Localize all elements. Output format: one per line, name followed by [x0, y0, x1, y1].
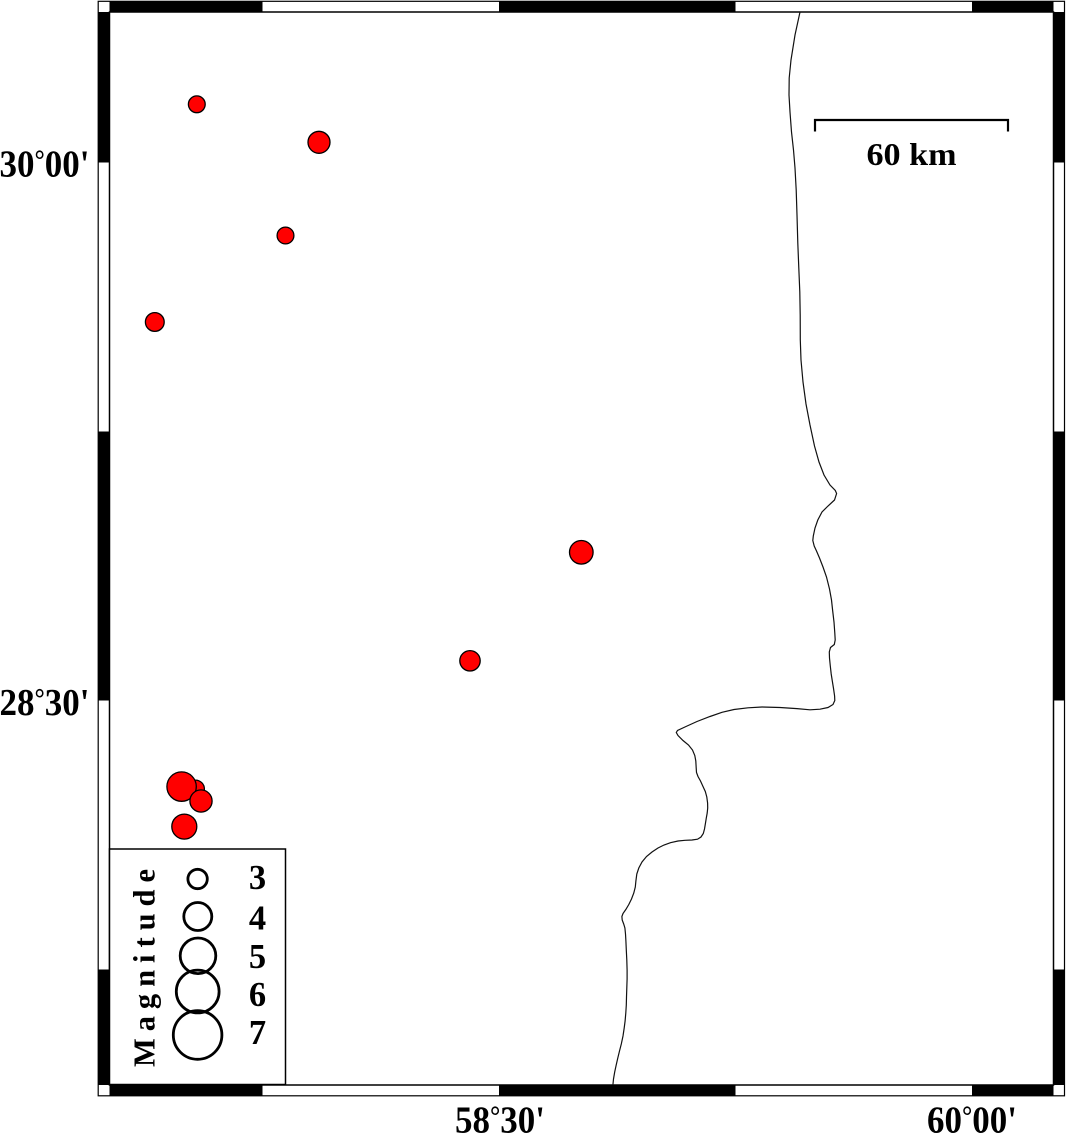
svg-text:28°30': 28°30': [0, 682, 90, 724]
svg-text:3: 3: [249, 859, 266, 897]
svg-text:4: 4: [249, 900, 266, 938]
svg-text:60 km: 60 km: [867, 136, 957, 172]
svg-text:6: 6: [249, 976, 266, 1014]
svg-text:58°30': 58°30': [455, 1100, 545, 1134]
svg-text:7: 7: [249, 1014, 266, 1052]
svg-text:60°00': 60°00': [927, 1100, 1017, 1134]
svg-text:5: 5: [249, 938, 266, 976]
svg-text:30°00': 30°00': [0, 144, 90, 186]
